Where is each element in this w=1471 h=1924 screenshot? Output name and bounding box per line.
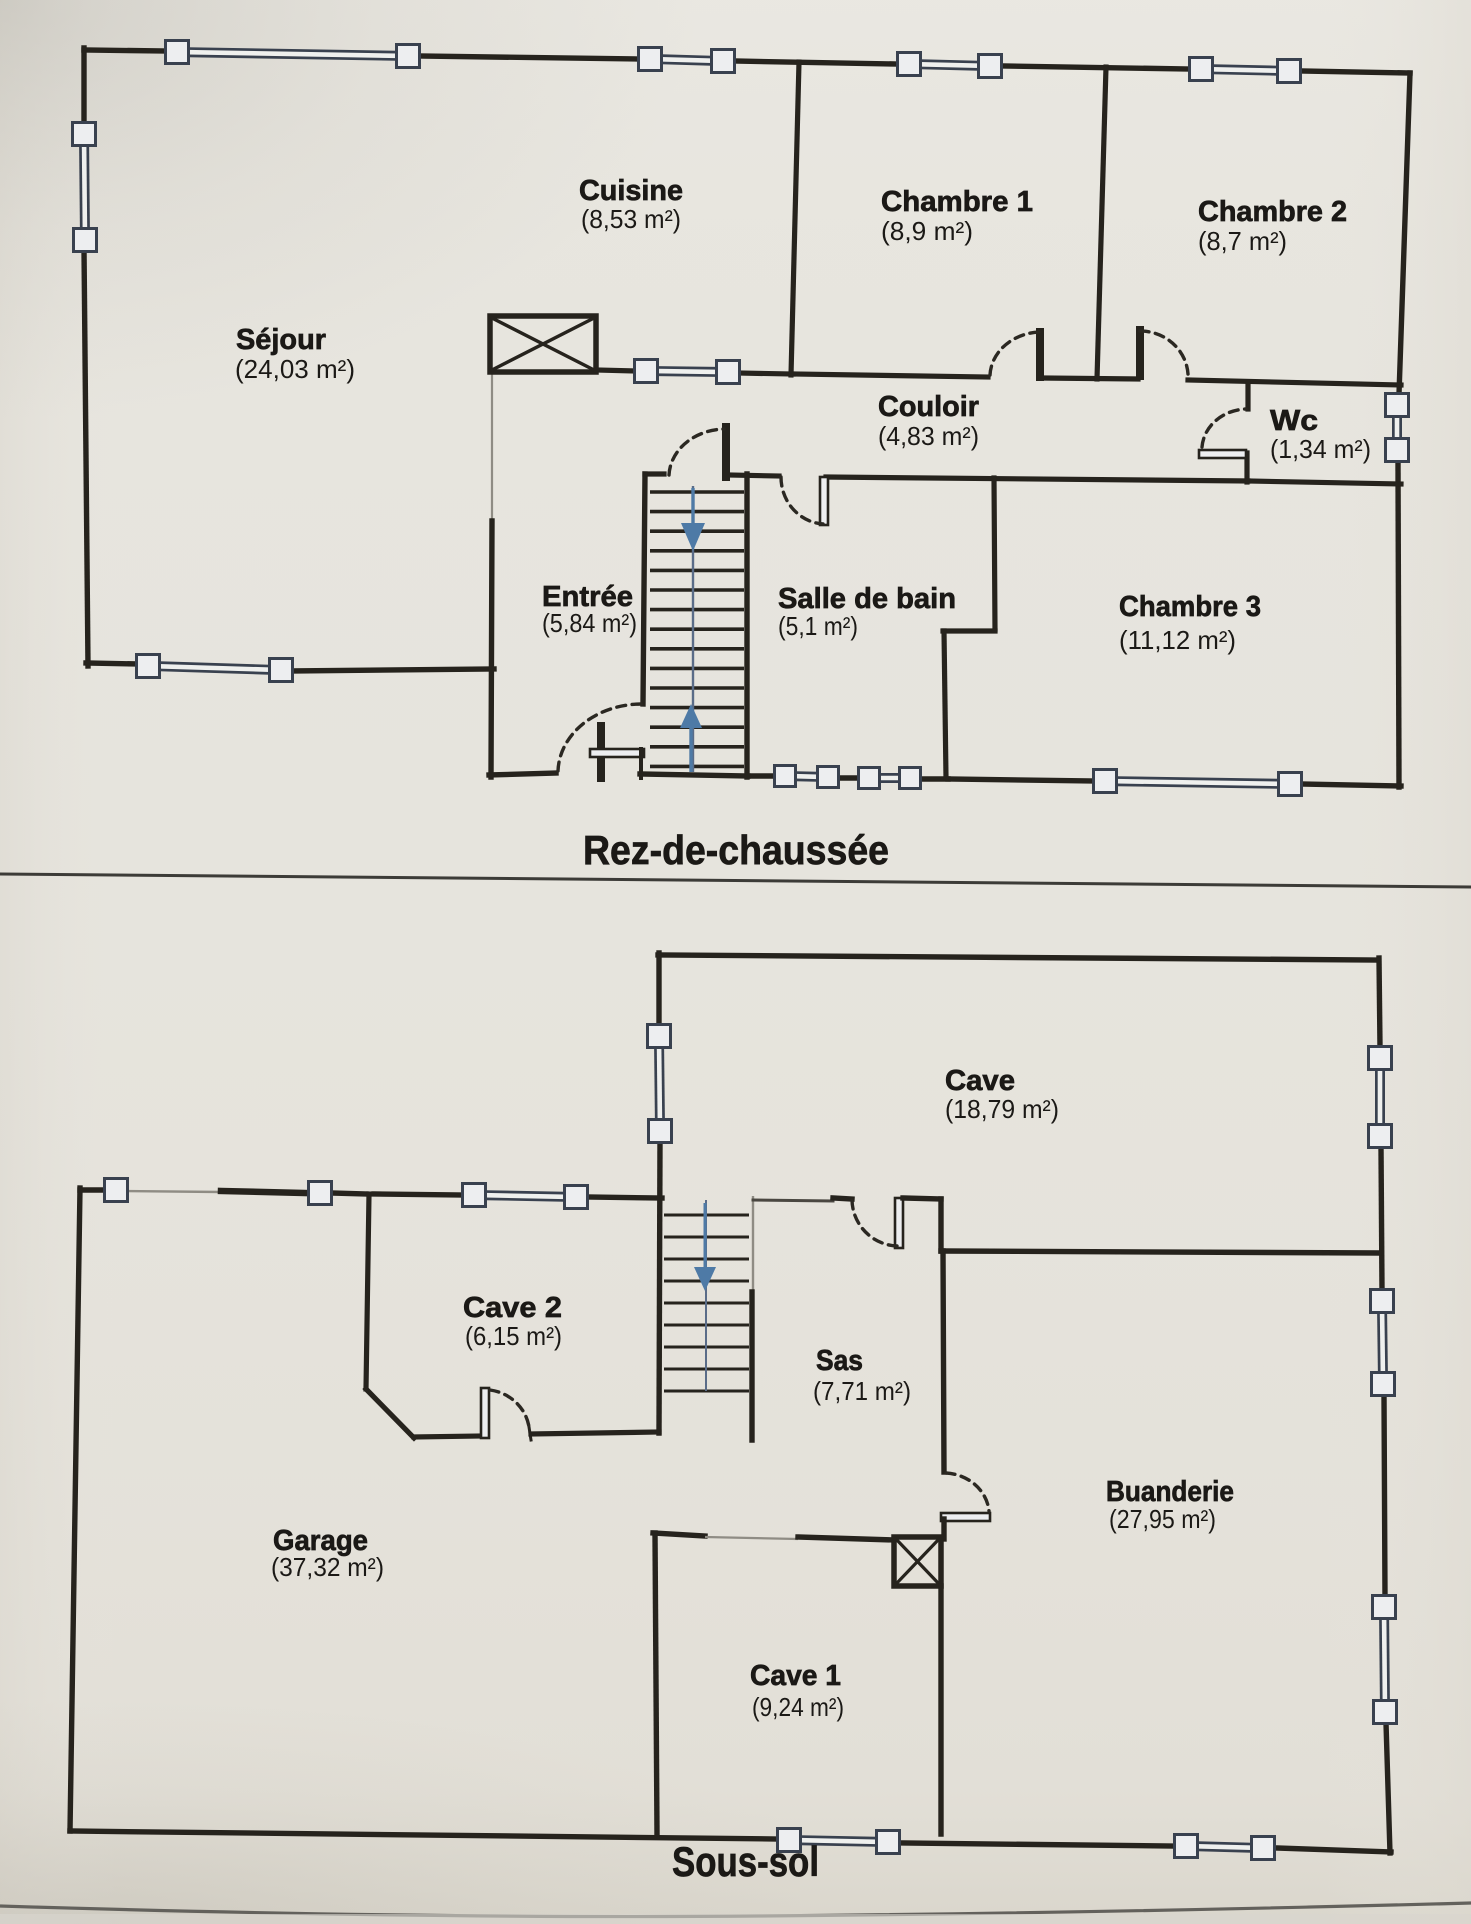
svg-text:(9,24 m²): (9,24 m²): [752, 1692, 844, 1722]
svg-text:Wc: Wc: [1270, 405, 1318, 437]
svg-text:Sous-sol: Sous-sol: [672, 1838, 819, 1885]
svg-text:Cave 2: Cave 2: [463, 1292, 562, 1324]
svg-text:Rez-de-chaussée: Rez-de-chaussée: [583, 827, 889, 873]
svg-text:(4,83 m²): (4,83 m²): [878, 421, 979, 451]
svg-text:(7,71 m²): (7,71 m²): [813, 1376, 911, 1406]
svg-text:(11,12 m²): (11,12 m²): [1119, 625, 1236, 655]
svg-text:Chambre 2: Chambre 2: [1198, 196, 1347, 228]
svg-text:(8,53 m²): (8,53 m²): [581, 204, 681, 234]
svg-text:Chambre 1: Chambre 1: [881, 186, 1033, 218]
svg-text:(6,15 m²): (6,15 m²): [465, 1321, 562, 1351]
svg-text:Cave 1: Cave 1: [750, 1660, 841, 1692]
svg-text:Cave: Cave: [945, 1065, 1015, 1097]
svg-text:(27,95 m²): (27,95 m²): [1109, 1504, 1216, 1534]
svg-text:Cuisine: Cuisine: [579, 175, 683, 207]
svg-text:Sas: Sas: [816, 1345, 863, 1377]
svg-text:(8,9 m²): (8,9 m²): [881, 216, 973, 246]
svg-text:(8,7 m²): (8,7 m²): [1198, 226, 1287, 256]
svg-text:Couloir: Couloir: [878, 391, 979, 423]
svg-text:(18,79 m²): (18,79 m²): [945, 1094, 1059, 1124]
svg-text:(5,1 m²): (5,1 m²): [778, 611, 858, 641]
svg-text:(5,84 m²): (5,84 m²): [542, 608, 637, 638]
svg-text:(37,32 m²): (37,32 m²): [271, 1552, 384, 1582]
svg-text:(1,34 m²): (1,34 m²): [1270, 434, 1371, 464]
svg-text:(24,03 m²): (24,03 m²): [235, 354, 355, 384]
svg-text:Chambre 3: Chambre 3: [1119, 591, 1261, 623]
svg-text:Séjour: Séjour: [236, 324, 326, 356]
